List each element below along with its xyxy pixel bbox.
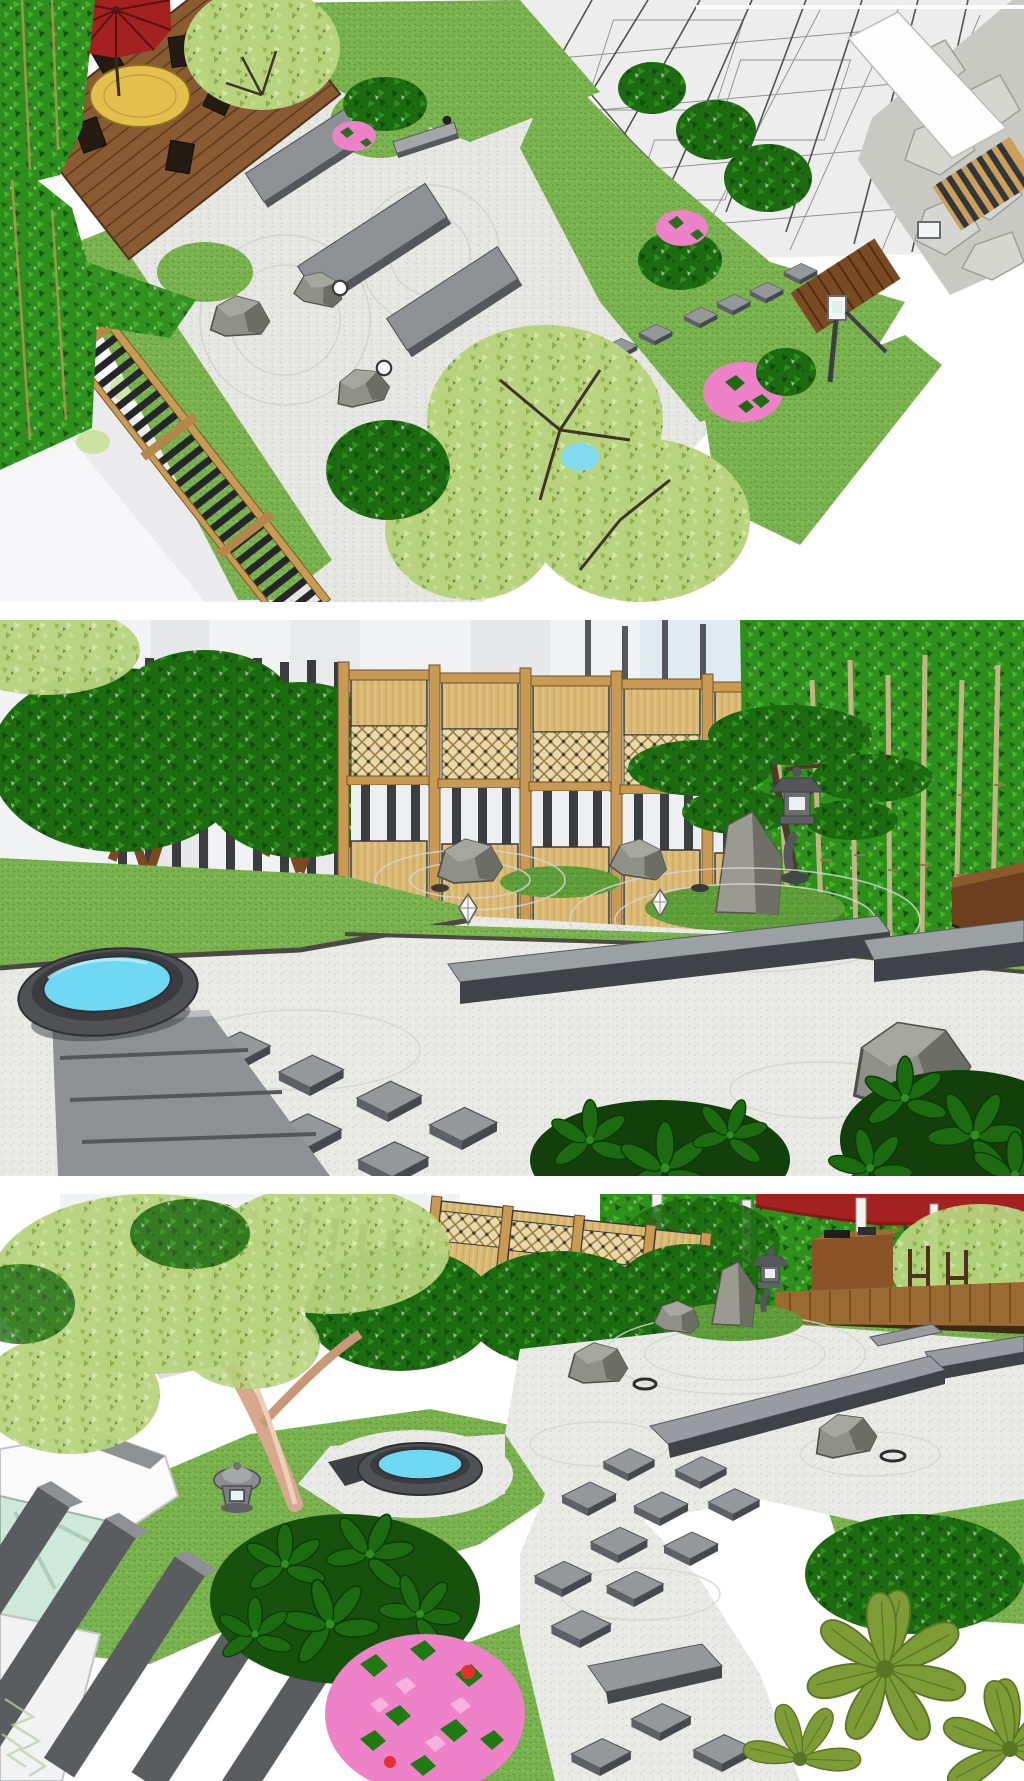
render-collage-page: [0, 0, 1024, 1781]
panel-3-elevated-render: [0, 1194, 1024, 1781]
counter-box: [812, 1227, 905, 1297]
azalea-bush: [332, 121, 376, 151]
water-basin: [317, 1430, 513, 1518]
sphere-light: [377, 361, 391, 375]
panel-1-aerial-render: [0, 0, 1024, 602]
panel-2-ground-render: [0, 620, 1024, 1176]
sphere-light: [333, 281, 347, 295]
pond-glimpse: [561, 443, 599, 471]
